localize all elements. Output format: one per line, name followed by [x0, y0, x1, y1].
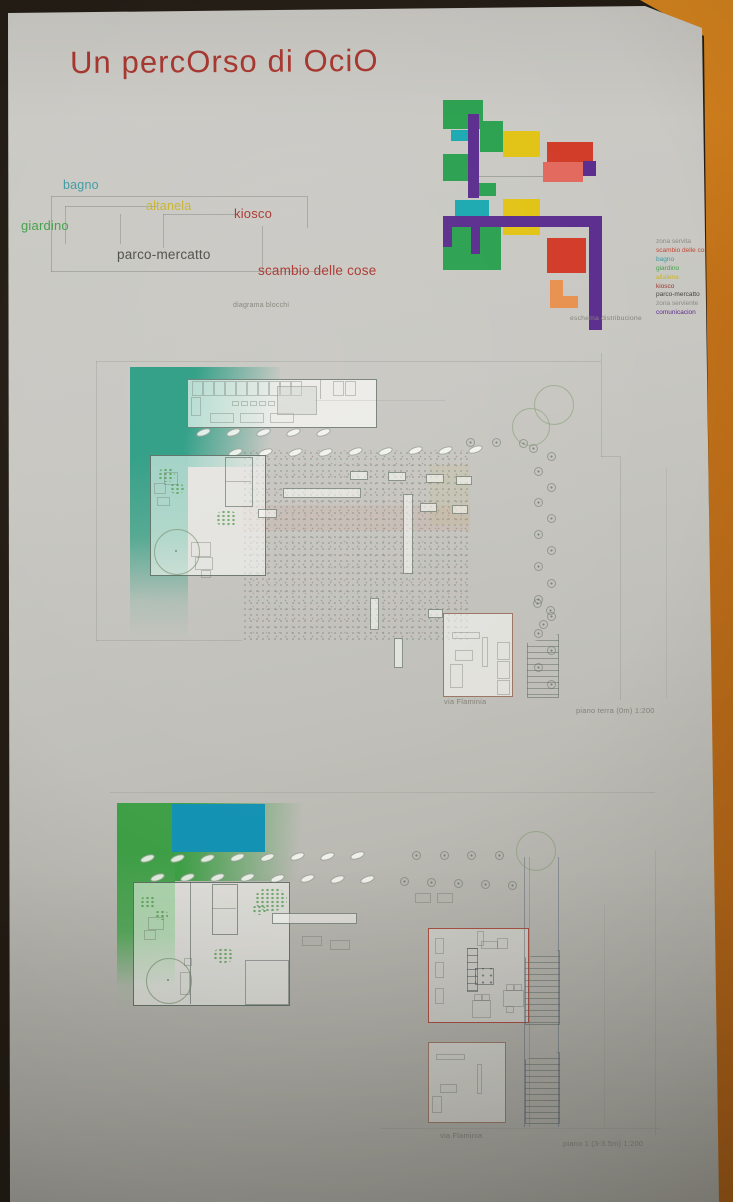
path-tree: [492, 438, 501, 447]
sink: [232, 401, 239, 406]
tree: [534, 385, 574, 425]
street-label-first: via Flaminia: [440, 1131, 482, 1140]
path-tree: [427, 878, 436, 887]
chair: [514, 984, 522, 991]
staircase: [525, 1052, 560, 1124]
furniture: [191, 542, 211, 557]
wall-element: [370, 598, 379, 630]
sink: [268, 401, 275, 406]
chair: [506, 984, 514, 991]
vestibule: [212, 884, 238, 935]
planter: [164, 472, 178, 485]
wall-line: [212, 908, 236, 909]
schema-block-orange: [550, 296, 578, 308]
plan-ground-caption: piano terra (0m) 1:200: [576, 706, 655, 715]
schema-block-green: [480, 121, 503, 152]
bench: [210, 413, 234, 423]
furniture: [450, 664, 463, 688]
toilet-stall: [225, 381, 236, 396]
sunbed: [388, 472, 406, 481]
wall-element: [403, 494, 413, 574]
schema-bar-purple: [468, 114, 479, 198]
schema-block-purple: [583, 161, 596, 176]
path-tree: [412, 851, 421, 860]
diagram-line: [163, 214, 164, 248]
table: [455, 650, 473, 661]
furniture: [497, 938, 508, 949]
shelf: [482, 637, 488, 667]
path-tree: [547, 483, 556, 492]
toilet-stall: [214, 381, 225, 396]
bench: [349, 850, 365, 862]
bench: [240, 413, 264, 423]
label-bagno: bagno: [63, 178, 99, 192]
sunbed: [258, 509, 277, 518]
toilet-stall: [345, 381, 356, 396]
sunbed: [415, 893, 431, 903]
bench: [435, 988, 444, 1004]
vestibule: [225, 457, 253, 507]
counter: [481, 941, 498, 949]
path-tree: [534, 467, 543, 476]
storage: [497, 661, 510, 679]
schema-block-green: [479, 183, 496, 196]
schema-block-red: [547, 238, 586, 273]
site-boundary: [380, 1128, 660, 1129]
site-boundary: [655, 850, 656, 1135]
chair: [482, 994, 490, 1001]
bench: [315, 427, 331, 439]
stove: [475, 968, 494, 985]
label-parco-mercatto: parco-mercatto: [117, 247, 211, 262]
bench: [359, 874, 375, 886]
diagram-line: [163, 214, 235, 215]
site-boundary: [96, 361, 601, 362]
toilet-stall: [247, 381, 258, 396]
bench: [319, 851, 335, 863]
sink: [241, 401, 248, 406]
tree-trunk: [167, 979, 169, 981]
wall-line: [225, 481, 251, 482]
storage: [497, 680, 510, 695]
staircase: [527, 634, 559, 698]
wall-line: [315, 400, 445, 401]
label-giardino: giardino: [21, 218, 69, 233]
sunbed: [302, 936, 322, 946]
furniture: [195, 557, 213, 570]
path-tree: [533, 599, 542, 608]
chair: [506, 1006, 514, 1013]
path-tree: [534, 498, 543, 507]
plan-first-caption: piano 1 (3-3.5m) 1:200: [563, 1139, 643, 1148]
table: [503, 990, 524, 1007]
wall-line: [320, 379, 321, 399]
path-tree: [454, 879, 463, 888]
sunbed: [426, 474, 444, 483]
toilet-stall: [203, 381, 214, 396]
ramp-wall: [524, 857, 525, 1127]
pool-roof: [172, 804, 265, 852]
architecture-poster: Un percOrso di OciO bagno altanela kiosc…: [0, 0, 733, 1202]
site-boundary: [601, 456, 620, 457]
site-boundary: [96, 640, 242, 641]
planter: [154, 483, 166, 494]
path-tree: [508, 881, 517, 890]
path-tree: [467, 851, 476, 860]
table: [472, 1000, 491, 1018]
schema-stub-purple: [471, 227, 480, 254]
tree-scribble: [213, 948, 234, 963]
shelf: [477, 1064, 482, 1094]
schema-connector-line: [479, 176, 547, 177]
site-boundary: [604, 905, 605, 1130]
sunbed: [437, 893, 453, 903]
table: [440, 1084, 457, 1093]
furniture: [180, 972, 190, 995]
sink: [250, 401, 257, 406]
furniture: [432, 1096, 442, 1113]
counter: [436, 1054, 465, 1060]
staircase: [525, 950, 560, 1025]
path-tree: [547, 579, 556, 588]
path-tree: [495, 851, 504, 860]
schema-caption: eschema distribucione: [570, 315, 642, 322]
path-tree: [534, 629, 543, 638]
schema-block-green: [443, 154, 471, 181]
toilet-stall: [236, 381, 247, 396]
diagram-line: [51, 196, 52, 272]
bench: [435, 962, 444, 978]
path-tree: [547, 546, 556, 555]
sunbed: [330, 940, 350, 950]
sunbed: [350, 471, 368, 480]
tree-scribble: [140, 896, 156, 909]
counter: [452, 632, 480, 639]
poster-title: Un percOrso di OciO: [70, 43, 379, 81]
furniture: [201, 570, 211, 578]
path-tree: [440, 851, 449, 860]
planter: [157, 497, 170, 506]
schema-block-teal: [451, 130, 468, 141]
label-kiosco: kiosco: [234, 206, 272, 221]
storage: [497, 642, 510, 660]
label-scambio-delle-cose: scambio delle cose: [258, 263, 376, 278]
tree-scribble: [252, 905, 266, 915]
schema-bar-purple: [443, 216, 601, 227]
site-boundary: [620, 456, 621, 700]
bench: [329, 874, 345, 886]
path-tree: [400, 877, 409, 886]
path-tree: [547, 452, 556, 461]
diagram-line: [65, 206, 157, 207]
block-diagram-caption: diagrama blocchi: [233, 302, 289, 309]
site-boundary: [601, 353, 602, 457]
toilet-stall: [258, 381, 269, 396]
diagram-line: [120, 214, 121, 244]
path-tree: [534, 530, 543, 539]
label-altanela: altanela: [146, 199, 191, 213]
sunbed: [452, 505, 468, 514]
street-label-ground: via Flaminia: [444, 697, 486, 706]
path-tree: [481, 880, 490, 889]
sink: [259, 401, 266, 406]
pergola-bar: [272, 913, 357, 924]
bench: [435, 938, 444, 954]
sunbed: [456, 476, 472, 485]
site-boundary: [110, 792, 655, 793]
diagram-line: [307, 196, 308, 228]
schema-bar-purple: [589, 216, 602, 330]
roof-opening: [245, 960, 289, 1005]
chair: [474, 994, 482, 1001]
photo-of-poster: Un percOrso di OciO bagno altanela kiosc…: [0, 0, 733, 1202]
diagram-line: [51, 196, 307, 197]
schema-block-yellow: [503, 131, 540, 157]
path-tree: [534, 562, 543, 571]
tree-scribble: [216, 510, 237, 527]
schema-stub-purple: [443, 227, 452, 247]
path-tree: [547, 514, 556, 523]
site-boundary: [96, 361, 97, 641]
path-tree: [466, 438, 475, 447]
pergola-bar: [283, 488, 361, 498]
sunbed: [428, 609, 443, 618]
schema-block-salmon: [543, 162, 583, 182]
bench: [285, 427, 301, 439]
fixture: [191, 397, 201, 416]
tree-trunk: [175, 550, 177, 552]
wall-element: [394, 638, 403, 668]
path-tree: [539, 620, 548, 629]
planter: [144, 930, 156, 940]
furniture: [184, 958, 192, 966]
annex-building: [277, 386, 317, 415]
tree: [516, 831, 556, 871]
toilet-stall: [192, 381, 203, 396]
path-tree: [546, 606, 555, 615]
sunbed: [420, 503, 437, 512]
planter: [148, 917, 164, 930]
site-boundary: [666, 468, 667, 698]
toilet-stall: [333, 381, 344, 396]
